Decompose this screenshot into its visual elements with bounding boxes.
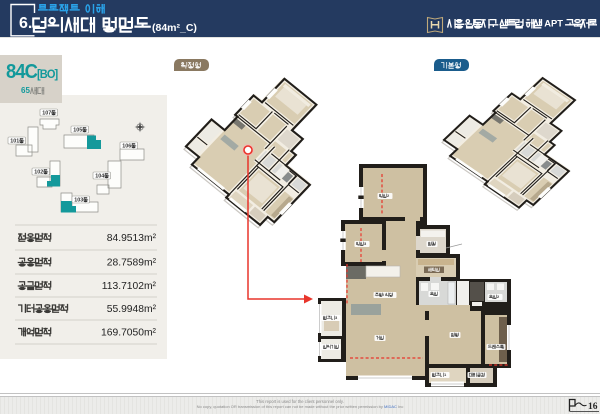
svg-text:16: 16 [588,402,598,412]
